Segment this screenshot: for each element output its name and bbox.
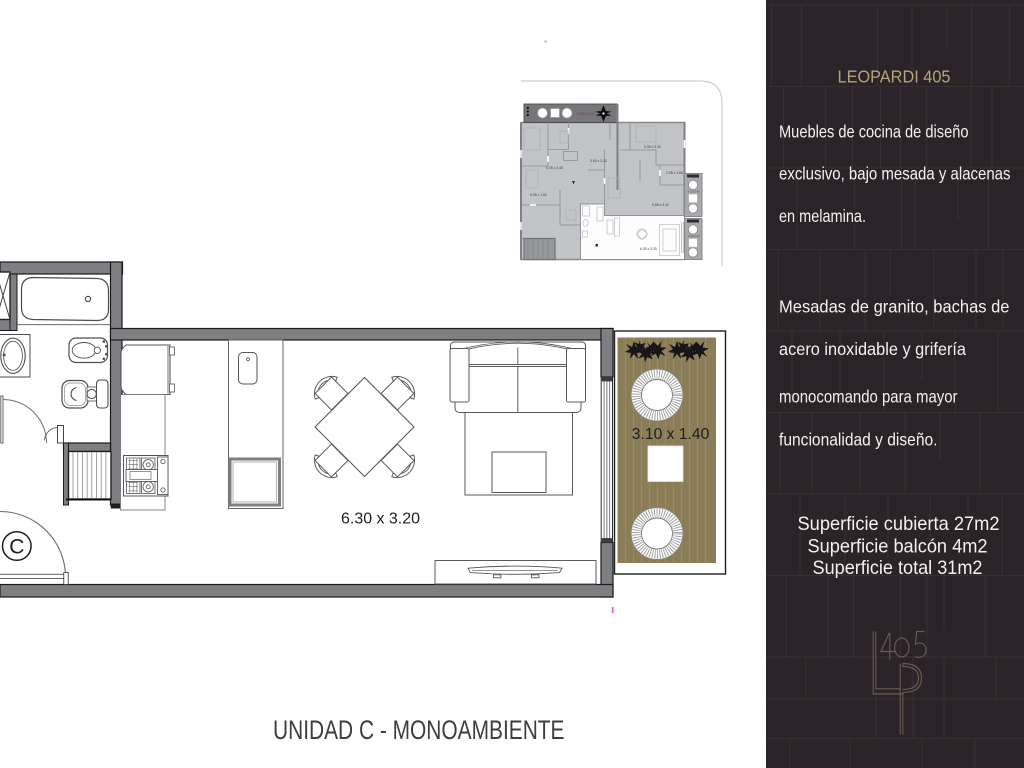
svg-text:6.30 x 3.20: 6.30 x 3.20: [640, 247, 657, 251]
svg-text:UNIDAD C - MONOAMBIENTE: UNIDAD C - MONOAMBIENTE: [273, 715, 565, 745]
svg-text:C: C: [9, 536, 24, 559]
svg-text:acero inoxidable y grifería: acero inoxidable y grifería: [779, 339, 966, 359]
svg-text:Muebles de cocina de diseño: Muebles de cocina de diseño: [779, 121, 969, 141]
svg-text:Superficie total 31m2: Superficie total 31m2: [813, 557, 983, 579]
svg-text:3.10x1.40: 3.10x1.40: [688, 190, 701, 194]
svg-text:5.85 x 3.40: 5.85 x 3.40: [652, 203, 669, 207]
svg-text:Superficie balcón 4m2: Superficie balcón 4m2: [808, 536, 988, 558]
svg-text:LEOPARDI 405: LEOPARDI 405: [838, 66, 951, 86]
svg-text:5.05 x 1.50: 5.05 x 1.50: [530, 193, 547, 197]
svg-text:funcionalidad y diseño.: funcionalidad y diseño.: [779, 430, 938, 450]
svg-text:exclusivo, bajo mesada y a: exclusivo, bajo mesada y alacenas: [779, 164, 1011, 184]
svg-text:2.05 x 1.65: 2.05 x 1.65: [666, 171, 683, 175]
svg-text:3.10 x 1.40: 3.10 x 1.40: [632, 426, 710, 443]
svg-text:5.06 x 3.20: 5.06 x 3.20: [644, 145, 661, 149]
svg-text:Superficie cubierta 27m2: Superficie cubierta 27m2: [798, 513, 1000, 535]
svg-text:monocomando para mayor: monocomando para mayor: [779, 387, 958, 407]
svg-text:Mesadas de granito, bachas: Mesadas de granito, bachas de: [779, 297, 1010, 317]
svg-text:6.30 x 3.20: 6.30 x 3.20: [341, 511, 420, 528]
svg-text:7.05 x 3.40: 7.05 x 3.40: [577, 112, 594, 116]
svg-text:3.10x1.40: 3.10x1.40: [688, 234, 701, 238]
svg-text:en melamina.: en melamina.: [779, 206, 866, 226]
svg-text:5.05 x 3.45: 5.05 x 3.45: [546, 166, 563, 170]
svg-text:3.60 x 3.20: 3.60 x 3.20: [590, 159, 607, 163]
